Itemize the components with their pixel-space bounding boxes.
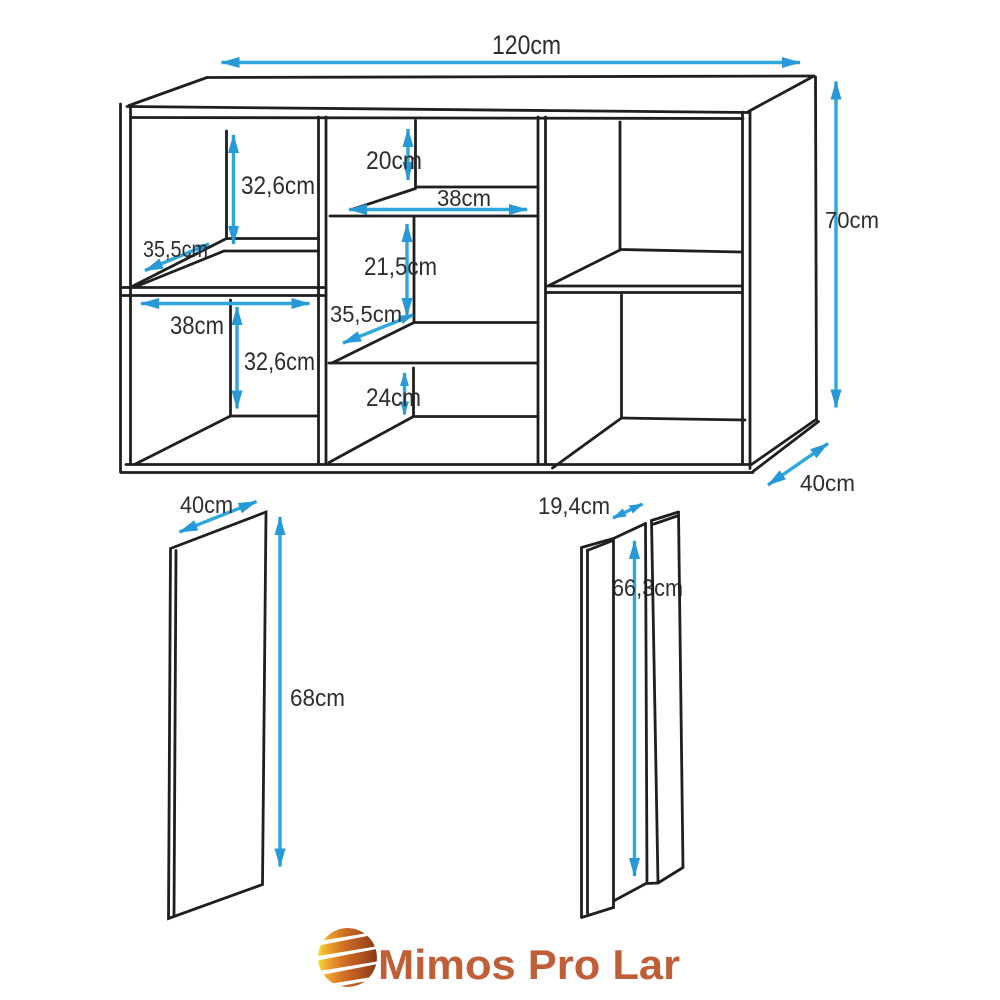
svg-text:21,5cm: 21,5cm xyxy=(364,253,437,281)
svg-text:40cm: 40cm xyxy=(180,492,233,519)
svg-text:38cm: 38cm xyxy=(170,312,224,340)
svg-text:38cm: 38cm xyxy=(437,185,491,211)
svg-text:35,5cm: 35,5cm xyxy=(143,236,208,262)
svg-text:68cm: 68cm xyxy=(290,685,345,712)
svg-text:Mimos Pro Lar: Mimos Pro Lar xyxy=(378,941,680,988)
svg-text:32,6cm: 32,6cm xyxy=(241,172,315,200)
svg-text:32,6cm: 32,6cm xyxy=(244,348,315,376)
svg-text:20cm: 20cm xyxy=(366,147,422,175)
svg-text:19,4cm: 19,4cm xyxy=(538,493,610,520)
svg-text:66,3cm: 66,3cm xyxy=(612,575,683,602)
svg-text:70cm: 70cm xyxy=(825,207,879,233)
svg-text:120cm: 120cm xyxy=(492,30,561,60)
svg-text:40cm: 40cm xyxy=(800,470,855,496)
svg-text:35,5cm: 35,5cm xyxy=(330,301,402,327)
svg-text:24cm: 24cm xyxy=(366,384,421,412)
